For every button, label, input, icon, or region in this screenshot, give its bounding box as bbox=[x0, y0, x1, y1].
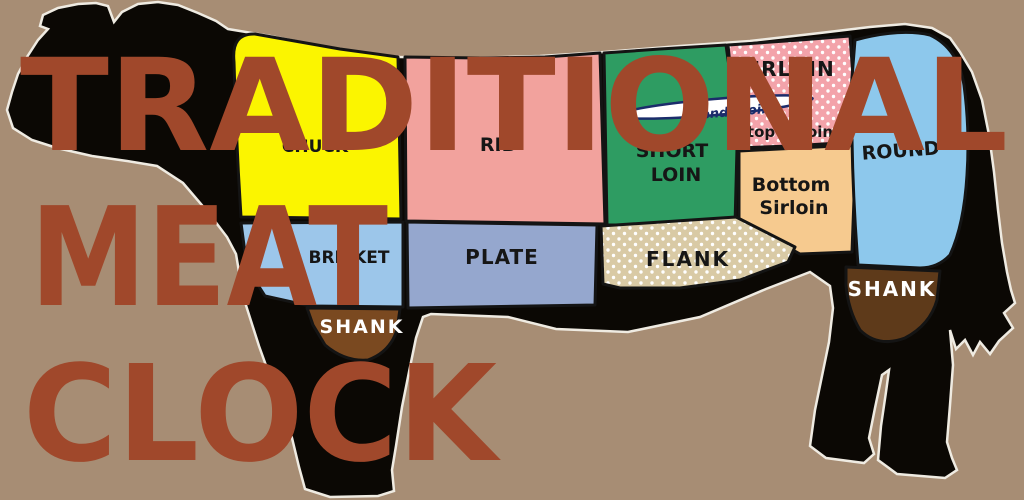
beef-cuts-poster: CHUCK RIB SHORT LOIN SIRLOIN tenderloin … bbox=[0, 0, 1024, 500]
title-line-3: CLOCK bbox=[23, 338, 502, 492]
bottom-sirloin-label-line2: Sirloin bbox=[759, 197, 828, 219]
shank-rear-label: SHANK bbox=[848, 277, 937, 301]
title-line-2: MEAT bbox=[30, 179, 388, 338]
title-line-1: TRADITIONAL bbox=[20, 32, 1008, 181]
flank-label: FLANK bbox=[646, 247, 730, 271]
beef-cuts-diagram: CHUCK RIB SHORT LOIN SIRLOIN tenderloin … bbox=[0, 0, 1024, 500]
plate-label: PLATE bbox=[465, 245, 539, 269]
